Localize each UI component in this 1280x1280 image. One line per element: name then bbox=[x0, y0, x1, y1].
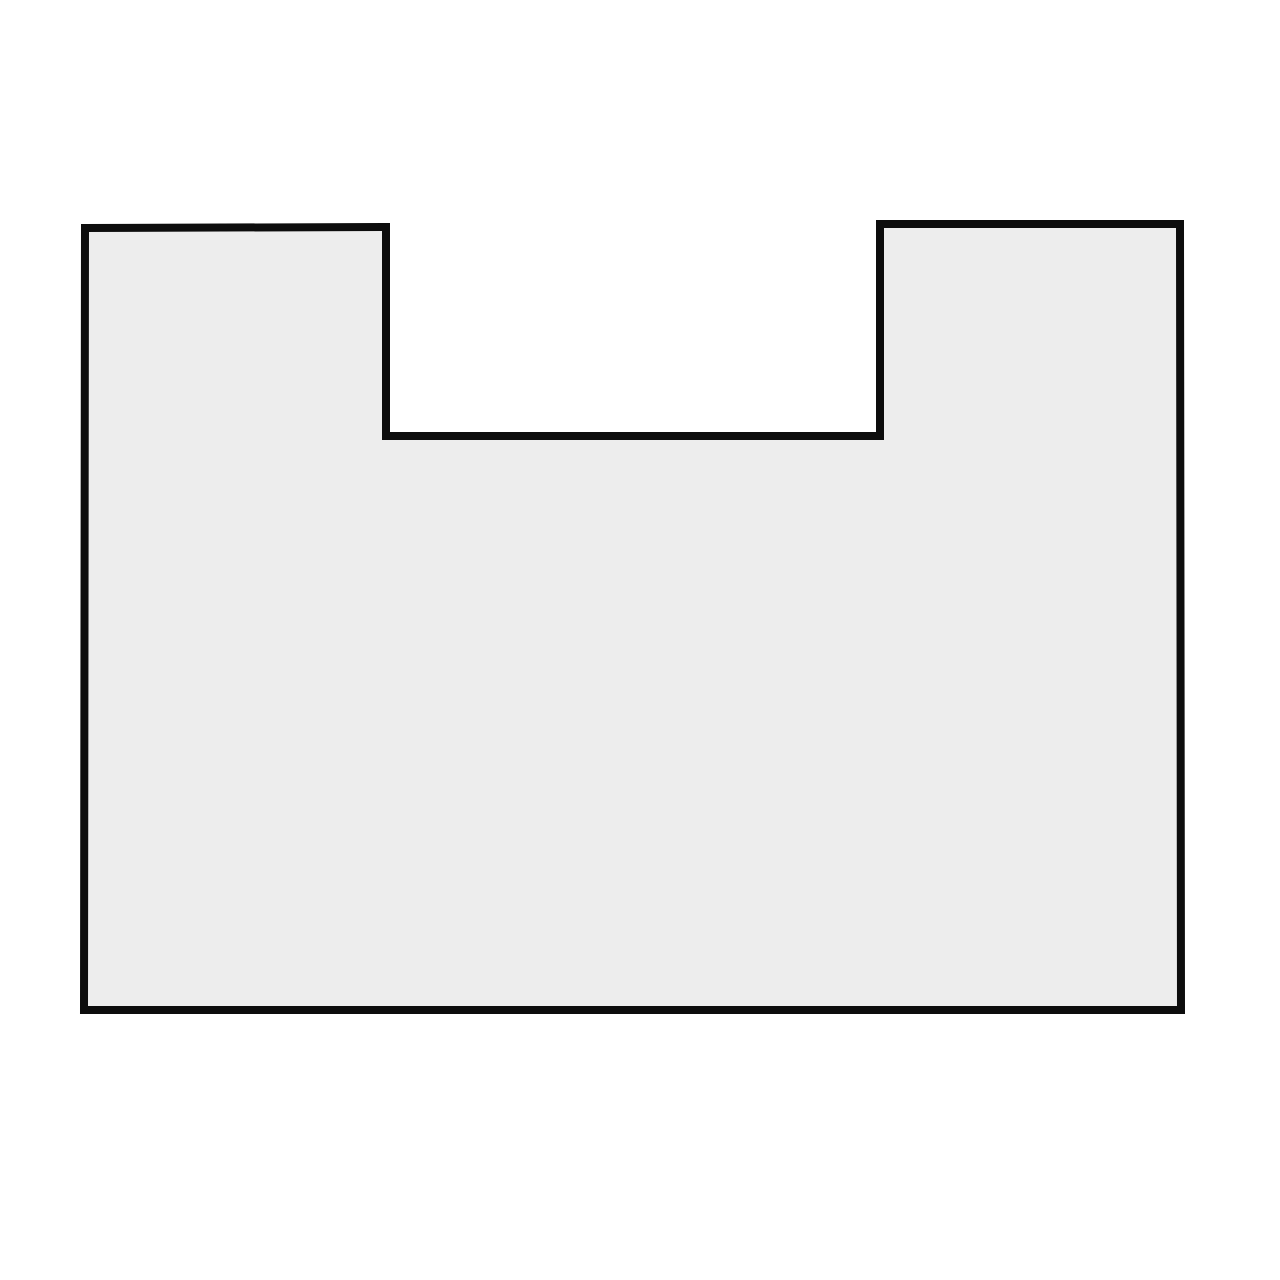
composite-shape-figure bbox=[0, 0, 1280, 1280]
diagram-canvas bbox=[0, 0, 1280, 1280]
notched-rectangle-shape bbox=[84, 224, 1181, 1010]
